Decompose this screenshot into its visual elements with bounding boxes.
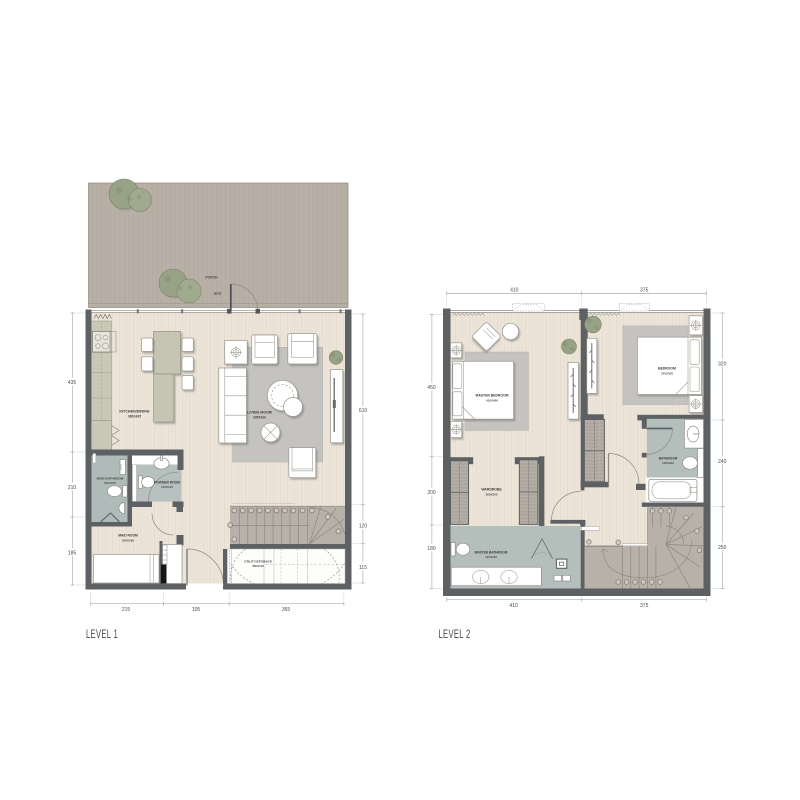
svg-text:LEVEL 2: LEVEL 2 <box>439 629 471 641</box>
svg-text:410X450: 410X450 <box>486 398 498 402</box>
svg-text:160X210: 160X210 <box>104 481 116 485</box>
svg-text:BEDROOM: BEDROOM <box>658 367 676 371</box>
svg-text:115: 115 <box>359 565 367 571</box>
svg-text:MAID ROOM: MAID ROOM <box>118 534 138 538</box>
svg-text:395X610: 395X610 <box>253 416 266 420</box>
svg-text:200X180: 200X180 <box>122 539 134 543</box>
svg-text:410: 410 <box>510 287 519 293</box>
svg-text:WARDROBE: WARDROBE <box>481 488 502 492</box>
svg-text:MASTER BEDROOM: MASTER BEDROOM <box>476 394 509 398</box>
svg-text:800: 800 <box>214 291 222 296</box>
svg-text:240: 240 <box>718 459 727 465</box>
svg-text:210: 210 <box>68 485 77 491</box>
svg-text:450: 450 <box>427 385 436 391</box>
svg-text:215: 215 <box>122 607 131 613</box>
svg-text:145X145: 145X145 <box>161 485 173 489</box>
svg-text:POWDER ROOM: POWDER ROOM <box>154 481 180 485</box>
svg-text:380X200: 380X200 <box>485 492 497 496</box>
svg-text:410: 410 <box>509 603 518 609</box>
svg-text:LIVING ROOM: LIVING ROOM <box>247 411 272 415</box>
svg-text:610: 610 <box>359 408 368 414</box>
svg-text:200: 200 <box>427 490 436 496</box>
svg-text:365: 365 <box>282 607 291 613</box>
svg-text:105: 105 <box>192 607 201 613</box>
svg-text:435: 435 <box>68 380 77 386</box>
svg-text:375: 375 <box>640 603 649 609</box>
svg-text:185: 185 <box>68 550 77 556</box>
svg-text:375: 375 <box>640 287 649 293</box>
svg-text:160X240: 160X240 <box>662 461 674 465</box>
svg-text:250: 250 <box>718 545 727 551</box>
svg-text:380X435: 380X435 <box>128 415 141 419</box>
svg-text:PORCH: PORCH <box>205 276 218 280</box>
svg-text:365X115: 365X115 <box>252 564 264 568</box>
svg-text:120: 120 <box>359 523 368 529</box>
svg-text:320: 320 <box>718 361 727 367</box>
svg-text:KITCHEN/DINING: KITCHEN/DINING <box>119 410 149 414</box>
svg-text:410X180: 410X180 <box>485 555 497 559</box>
svg-text:LEVEL 1: LEVEL 1 <box>86 629 118 641</box>
svg-text:375X320: 375X320 <box>661 371 673 375</box>
svg-text:180: 180 <box>427 546 436 552</box>
